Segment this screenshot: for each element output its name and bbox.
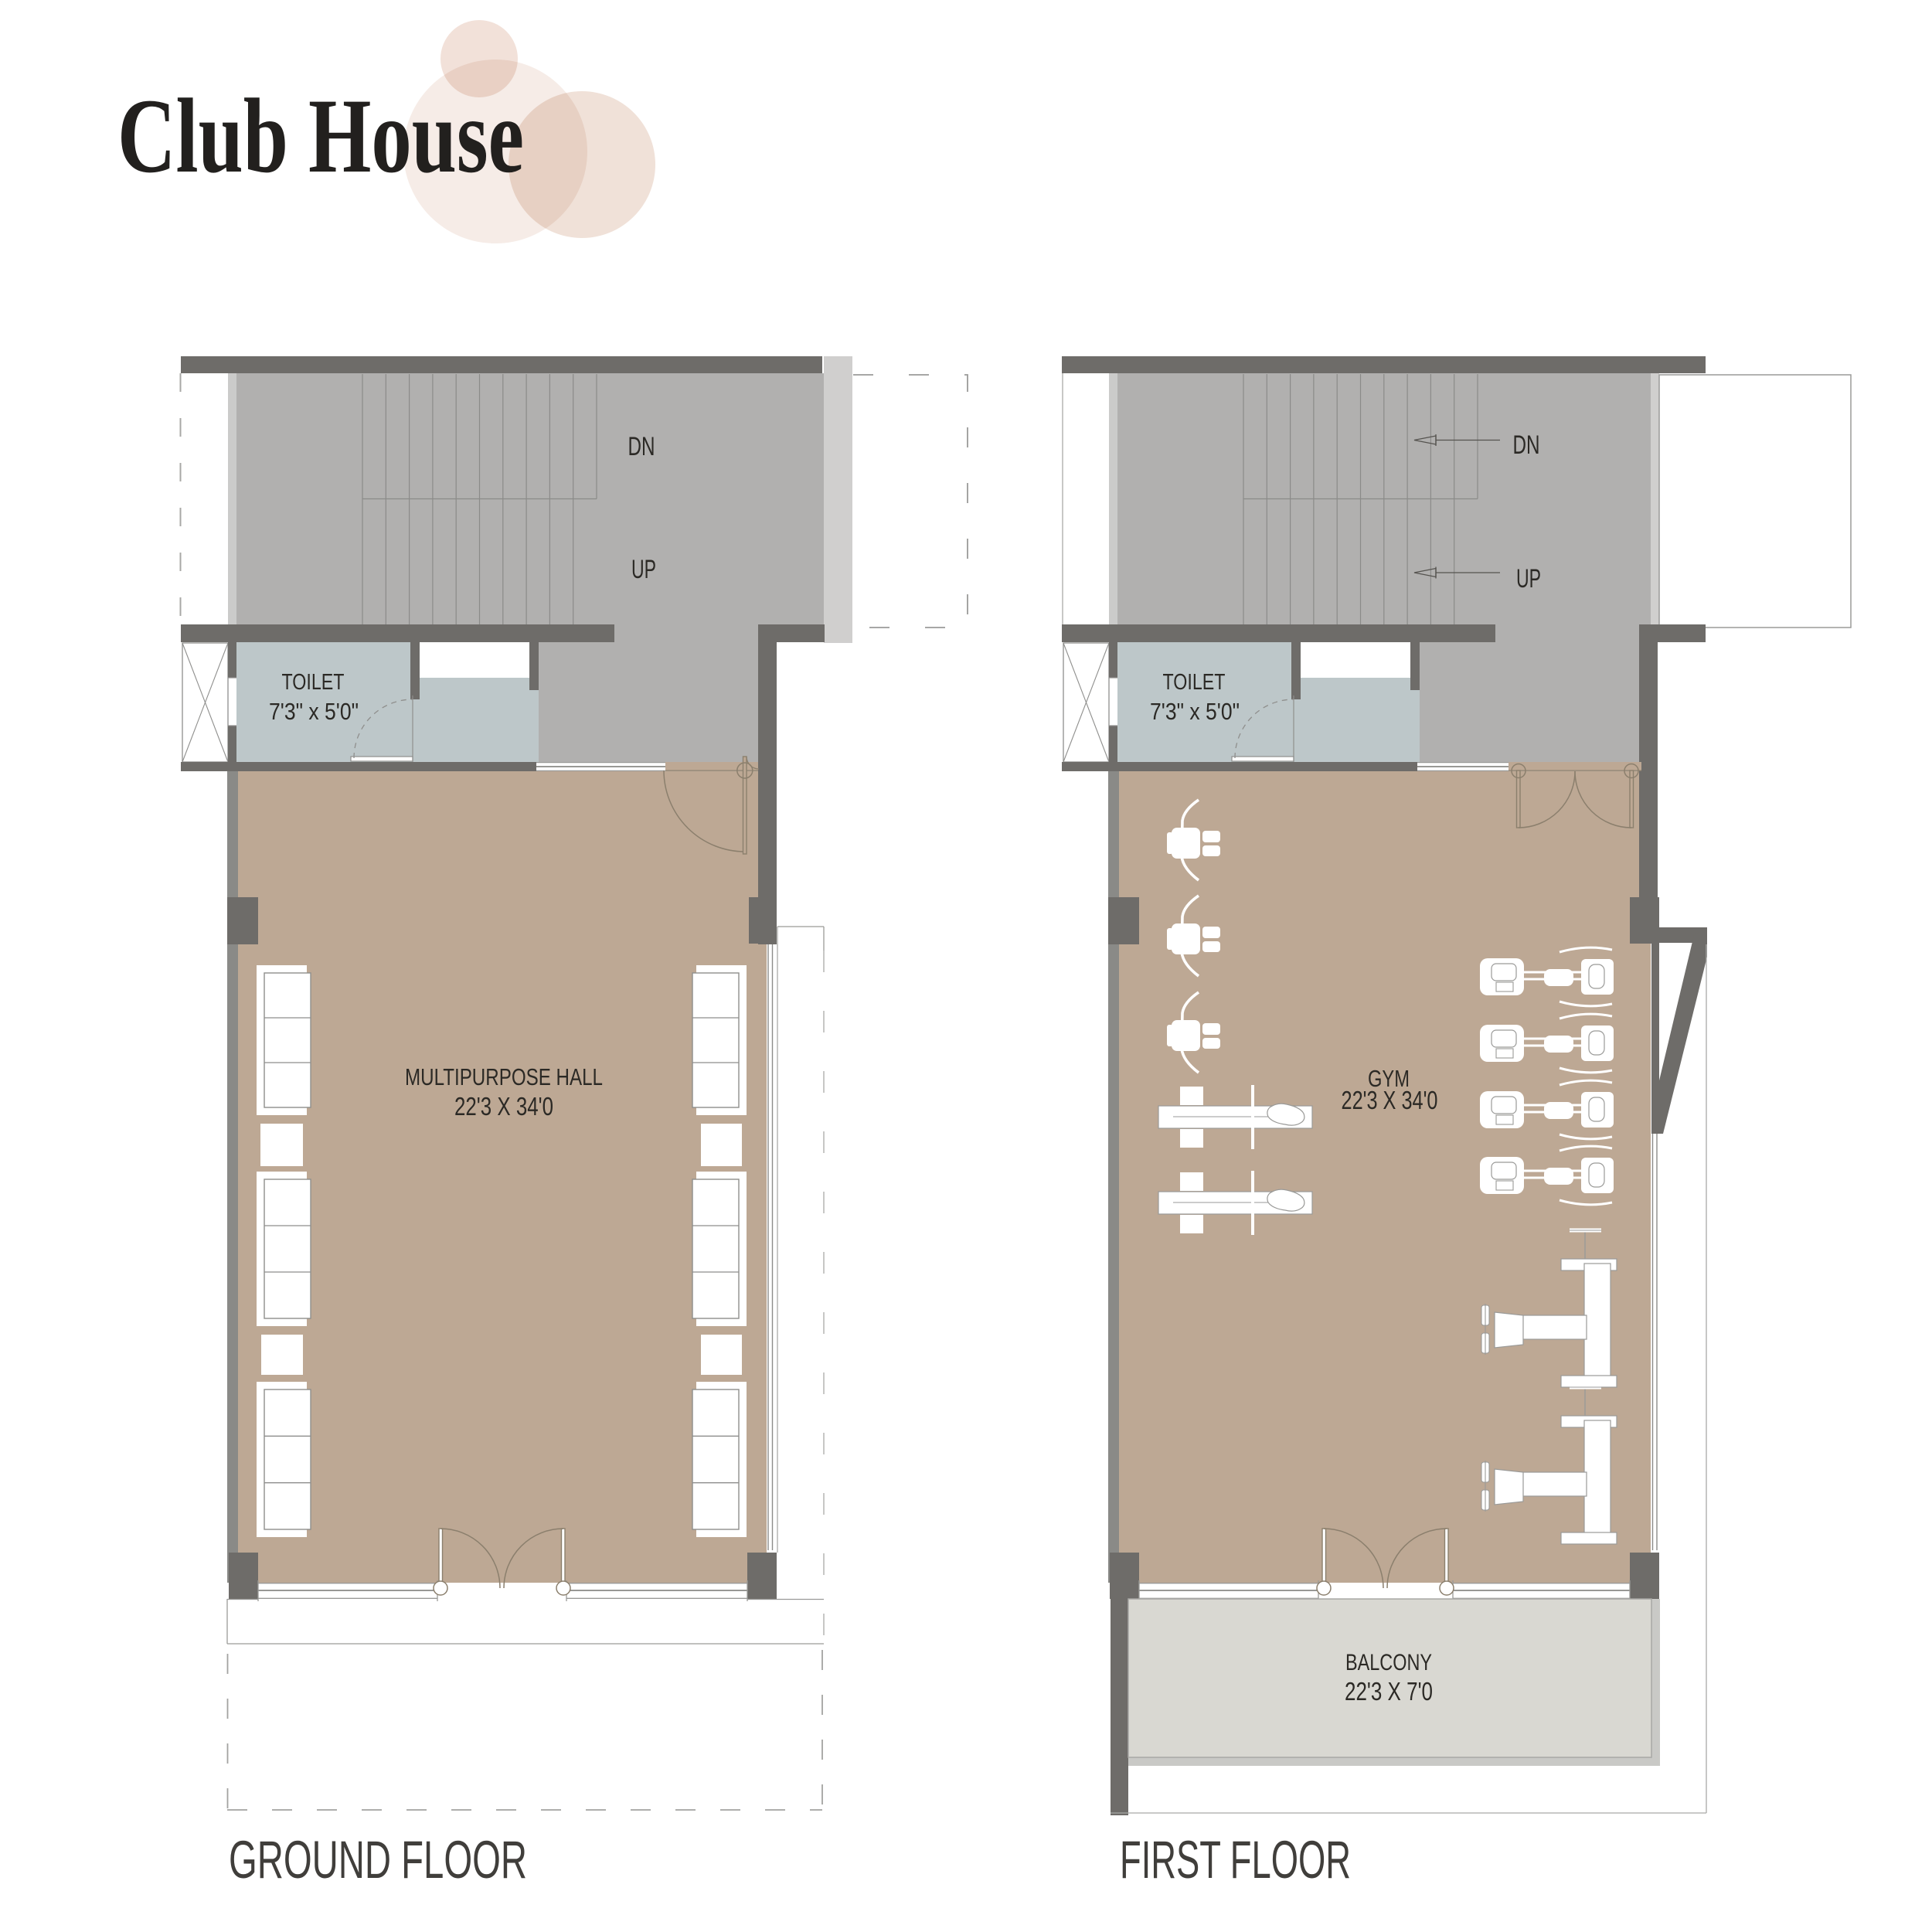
svg-text:FIRST FLOOR: FIRST FLOOR xyxy=(1120,1830,1351,1889)
svg-text:MULTIPURPOSE HALL: MULTIPURPOSE HALL xyxy=(405,1063,603,1090)
svg-text:TOILET: TOILET xyxy=(282,670,345,695)
svg-text:7'3" x 5'0": 7'3" x 5'0" xyxy=(1150,698,1240,725)
svg-text:UP: UP xyxy=(631,555,656,584)
svg-text:TOILET: TOILET xyxy=(1163,670,1226,695)
svg-text:UP: UP xyxy=(1516,564,1541,594)
svg-text:DN: DN xyxy=(1513,430,1540,460)
svg-text:Club House: Club House xyxy=(117,77,524,195)
svg-text:22'3 X 34'0: 22'3 X 34'0 xyxy=(454,1092,553,1121)
svg-text:GROUND FLOOR: GROUND FLOOR xyxy=(229,1830,527,1889)
svg-text:22'3 X 7'0: 22'3 X 7'0 xyxy=(1345,1677,1433,1706)
svg-text:7'3" x 5'0": 7'3" x 5'0" xyxy=(269,698,359,725)
svg-text:22'3 X 34'0: 22'3 X 34'0 xyxy=(1342,1086,1438,1114)
svg-text:DN: DN xyxy=(628,432,655,461)
svg-text:BALCONY: BALCONY xyxy=(1345,1650,1432,1675)
